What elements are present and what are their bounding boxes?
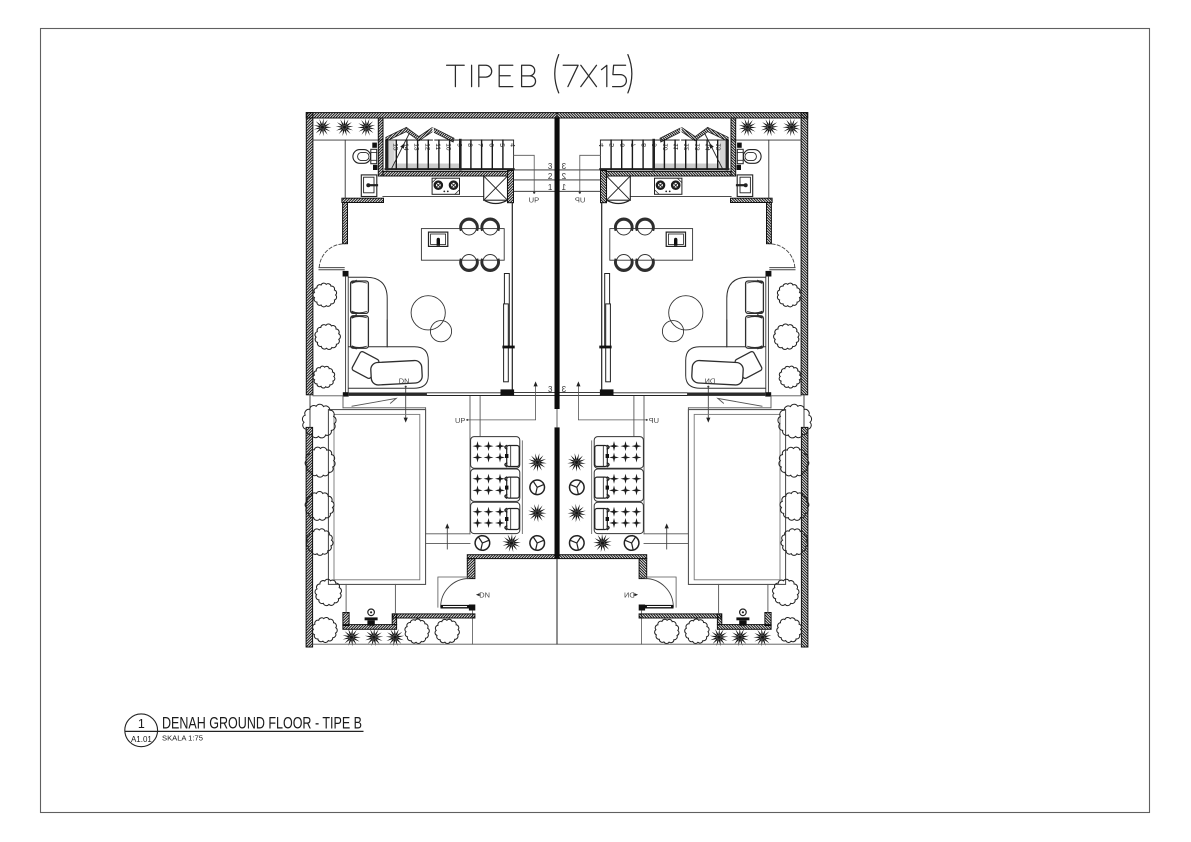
svg-text:6: 6 — [487, 143, 494, 147]
svg-text:8: 8 — [466, 143, 473, 147]
svg-text:4: 4 — [509, 143, 516, 147]
svg-text:5: 5 — [498, 143, 505, 147]
svg-text:12: 12 — [423, 143, 430, 151]
svg-text:7: 7 — [477, 143, 484, 147]
svg-text:3: 3 — [548, 385, 553, 394]
svg-text:DN: DN — [479, 591, 490, 600]
svg-text:15: 15 — [391, 143, 398, 151]
svg-text:11: 11 — [434, 143, 441, 150]
svg-text:DN: DN — [399, 376, 410, 385]
svg-text:1: 1 — [138, 717, 145, 731]
svg-text:10: 10 — [445, 143, 452, 151]
svg-text:2: 2 — [548, 172, 553, 181]
svg-text:9: 9 — [455, 143, 462, 147]
svg-text:DENAH GROUND FLOOR - TIPE B: DENAH GROUND FLOOR - TIPE B — [162, 714, 362, 732]
svg-text:SKALA 1:75: SKALA 1:75 — [162, 734, 203, 743]
svg-text:UP: UP — [529, 196, 540, 205]
svg-text:1: 1 — [548, 183, 553, 192]
svg-text:A1.01: A1.01 — [131, 735, 152, 744]
svg-text:13: 13 — [413, 143, 420, 151]
svg-text:3: 3 — [548, 162, 553, 171]
svg-text:UP: UP — [455, 416, 465, 425]
